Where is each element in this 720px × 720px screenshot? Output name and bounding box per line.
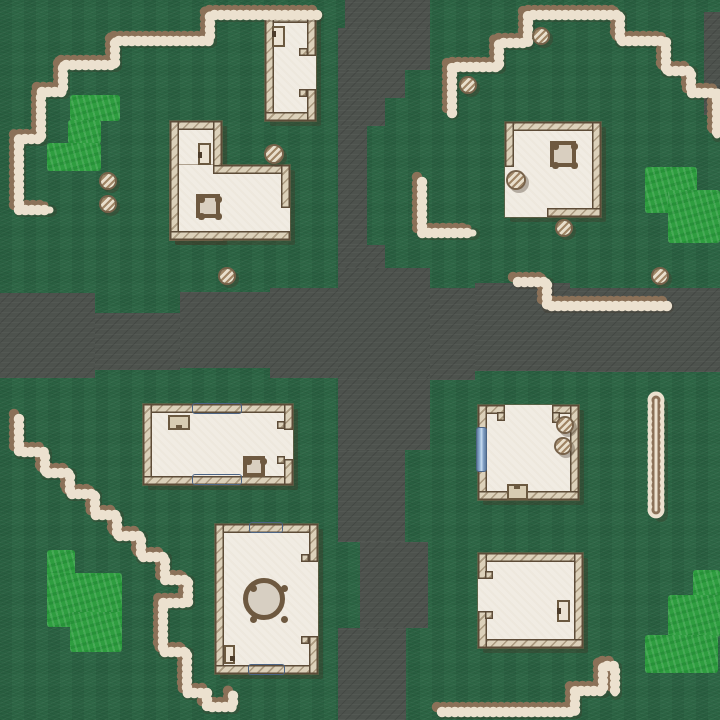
wall-segment [547, 208, 601, 217]
fence-se-hairpin[interactable] [656, 400, 661, 515]
table-knob [198, 196, 205, 203]
table-knob [250, 616, 257, 623]
fence-path [422, 182, 473, 233]
stove-box-notch [514, 484, 520, 489]
road-tile [338, 126, 367, 245]
round-table[interactable] [243, 578, 285, 620]
road-tile [338, 628, 406, 720]
rock[interactable] [266, 146, 282, 162]
rock[interactable] [558, 418, 572, 432]
door-handle [557, 608, 561, 614]
road-tile [338, 70, 405, 98]
fence-path [447, 10, 712, 130]
fence-path [442, 666, 615, 712]
square-table[interactable] [243, 456, 265, 477]
wall-segment [284, 404, 293, 430]
table-knob [215, 213, 222, 220]
road-tile [338, 28, 430, 70]
wall-segment [170, 121, 179, 240]
bush-patch-se [668, 595, 720, 637]
rock[interactable] [461, 78, 475, 92]
wall-segment [307, 89, 316, 121]
road-tile [180, 292, 270, 368]
fence-ne-corner[interactable] [417, 177, 474, 234]
road-tile [270, 288, 338, 378]
stove-box-notch [176, 425, 182, 430]
rock[interactable] [557, 221, 571, 235]
road-tile [338, 450, 405, 542]
wall-segment [170, 231, 290, 240]
bush-patch-se [645, 635, 718, 673]
rock[interactable] [101, 197, 115, 211]
square-table[interactable] [196, 194, 220, 218]
door[interactable] [224, 645, 235, 664]
road-tile [345, 0, 430, 28]
road-tile [95, 313, 180, 370]
fence-path [443, 667, 616, 713]
wall-segment [485, 611, 493, 619]
wall-segment [277, 421, 285, 429]
road-tile [475, 283, 570, 371]
wall-segment [284, 459, 293, 485]
table-knob [198, 213, 205, 220]
road-tile [360, 542, 428, 628]
rock[interactable] [220, 269, 234, 283]
road-tile [338, 245, 385, 268]
wall-segment [497, 412, 505, 421]
wall-segment [505, 122, 601, 131]
wall-segment [478, 553, 583, 562]
road-tile [338, 98, 385, 126]
door-handle [272, 31, 276, 37]
wall-segment [309, 524, 318, 562]
bush-patch-sw [70, 612, 122, 652]
door-handle [230, 656, 235, 661]
road-tile [704, 12, 720, 115]
wall-segment [309, 636, 318, 674]
table-knob [552, 162, 559, 169]
road-tile [570, 288, 720, 372]
fence-path [452, 15, 717, 135]
table-knob [552, 143, 559, 150]
wall-segment [574, 553, 583, 648]
window[interactable] [192, 403, 242, 414]
wall-segment [485, 571, 493, 579]
window[interactable] [192, 474, 242, 485]
table-knob [281, 616, 288, 623]
rock[interactable] [534, 29, 548, 43]
wall-segment [143, 404, 152, 485]
bush-patch-nw [47, 143, 101, 171]
wall-segment [299, 48, 308, 56]
table-knob [250, 585, 257, 592]
wall-segment [213, 165, 290, 174]
house-ne-square-floor[interactable] [505, 122, 601, 217]
fence-path [442, 666, 615, 712]
table-knob [571, 143, 578, 150]
fence-path [417, 177, 468, 228]
game-world-map [0, 0, 720, 720]
wall-segment [478, 639, 583, 648]
rock[interactable] [556, 439, 570, 453]
fence-path [447, 10, 712, 130]
table-knob [215, 196, 222, 203]
fence-ne-staircase[interactable] [447, 10, 718, 136]
wall-segment [215, 524, 224, 674]
road-tile [338, 268, 430, 378]
fence-se-zigzag[interactable] [437, 661, 616, 713]
bush-patch-nw [70, 95, 120, 121]
square-table[interactable] [550, 141, 576, 167]
table-knob [571, 162, 578, 169]
rock[interactable] [508, 172, 524, 188]
rock[interactable] [101, 174, 115, 188]
window[interactable] [248, 664, 285, 675]
table-knob [260, 458, 267, 465]
window[interactable] [249, 522, 283, 533]
fence-path [417, 177, 468, 228]
fence-path [423, 183, 474, 234]
bush-patch-ne [668, 190, 720, 243]
house-nw-lshape-floor[interactable] [170, 165, 290, 240]
rock[interactable] [653, 269, 667, 283]
table-knob [281, 585, 288, 592]
wall-segment [570, 405, 579, 500]
wall-segment [299, 89, 307, 97]
fence-path [452, 15, 717, 135]
wall-segment [307, 14, 316, 56]
fence-path [453, 16, 718, 136]
wall-segment [478, 491, 579, 500]
table-knob [245, 458, 252, 465]
house-sw-wide-floor[interactable] [143, 404, 293, 485]
fence-path [422, 182, 473, 233]
wall-segment [592, 122, 601, 217]
road-tile [338, 378, 430, 450]
road-tile [430, 288, 475, 380]
bush-patch-nw [68, 120, 101, 144]
wall-segment [301, 636, 309, 644]
road-tile [0, 293, 95, 378]
fence-path [437, 661, 610, 707]
wall-segment [277, 456, 285, 464]
door-handle [198, 152, 202, 158]
window[interactable] [476, 427, 487, 472]
fence-path [437, 661, 610, 707]
wall-segment [301, 554, 309, 562]
wall-segment [505, 122, 514, 167]
wall-segment [281, 165, 290, 208]
